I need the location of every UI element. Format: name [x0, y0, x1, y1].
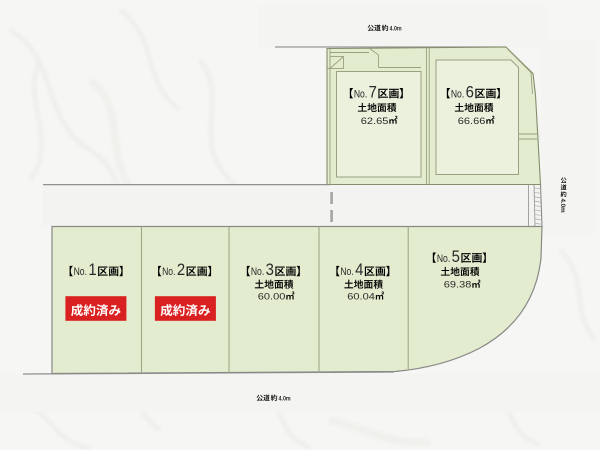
svg-text:No.: No. — [451, 88, 464, 100]
svg-text:No.: No. — [437, 253, 450, 265]
svg-text:7: 7 — [369, 82, 377, 101]
svg-text:5: 5 — [452, 247, 460, 266]
svg-text:4.0m: 4.0m — [559, 199, 566, 214]
svg-text:6: 6 — [466, 82, 474, 101]
svg-text:3: 3 — [266, 260, 274, 279]
svg-text:No.: No. — [340, 266, 353, 278]
svg-text:60.04: 60.04 — [347, 292, 375, 303]
svg-text:69.38: 69.38 — [444, 280, 472, 291]
svg-text:No.: No. — [74, 266, 87, 278]
svg-text:No.: No. — [162, 266, 175, 278]
svg-text:4.0m: 4.0m — [279, 395, 291, 402]
svg-text:1: 1 — [88, 260, 96, 279]
svg-text:60.00: 60.00 — [258, 292, 286, 303]
svg-text:4: 4 — [355, 260, 363, 279]
svg-text:66.66: 66.66 — [458, 116, 486, 127]
svg-text:4.0m: 4.0m — [390, 25, 402, 32]
svg-text:2: 2 — [177, 260, 185, 279]
svg-text:No.: No. — [251, 266, 264, 278]
svg-text:No.: No. — [354, 88, 367, 100]
svg-text:62.65: 62.65 — [361, 116, 389, 127]
